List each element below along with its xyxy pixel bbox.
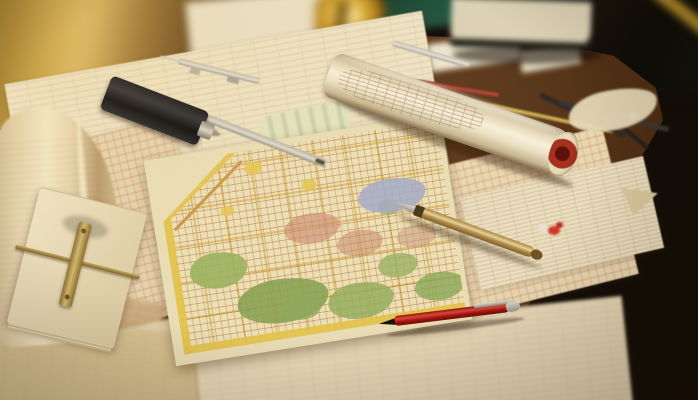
red-pen-end bbox=[505, 301, 520, 313]
desk-photo-scene bbox=[0, 0, 698, 400]
map-park-green bbox=[376, 250, 419, 280]
map-park-green bbox=[413, 268, 467, 303]
folded-paper-corner bbox=[622, 180, 662, 217]
map-block-yellow bbox=[301, 178, 318, 191]
red-wax-bits bbox=[538, 220, 564, 238]
map-diagonal-avenue bbox=[174, 160, 243, 231]
map-district-pink bbox=[282, 209, 342, 247]
map-block-yellow bbox=[243, 160, 263, 176]
map-block-yellow bbox=[220, 205, 235, 217]
book bbox=[447, 0, 599, 61]
map-district-pink bbox=[335, 226, 385, 259]
map-park-green bbox=[187, 248, 250, 293]
